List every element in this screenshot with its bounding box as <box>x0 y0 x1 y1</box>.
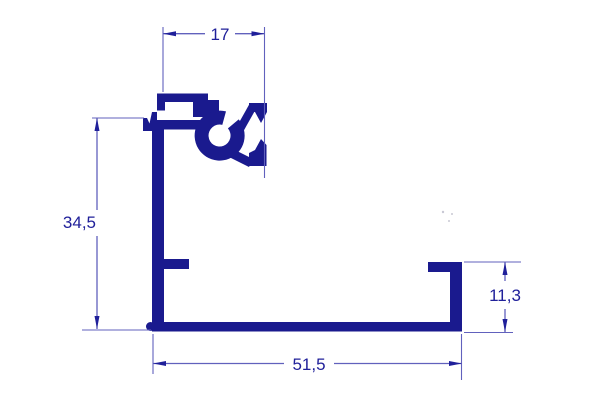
dim-left-label: 34,5 <box>63 213 96 232</box>
profile-hook-stub <box>157 94 165 111</box>
dimension-bottom-width: 51,5 <box>153 334 462 380</box>
dim-top-label: 17 <box>211 25 230 44</box>
profile-cross-section-drawing: 17 34,5 51,5 11,3 <box>0 0 600 400</box>
profile-bottom-flange <box>152 322 462 332</box>
stray-marks <box>442 211 453 222</box>
arrow-right-icon <box>252 31 265 36</box>
profile-clip-lower-jaw <box>249 139 267 166</box>
arrow-up-icon <box>95 118 100 131</box>
arrow-left-icon <box>153 361 166 366</box>
profile-body <box>143 94 462 332</box>
profile-right-lip <box>428 262 462 272</box>
profile-mid-tab <box>164 259 189 269</box>
profile-right-wall <box>450 262 462 331</box>
dim-right-label: 11,3 <box>489 286 521 305</box>
arrow-left-icon <box>163 31 176 36</box>
arrow-up-icon <box>503 262 508 275</box>
arrow-down-icon <box>503 319 508 332</box>
dim-bottom-label: 51,5 <box>292 355 325 374</box>
dimension-right-height: 11,3 <box>464 262 521 333</box>
technical-drawing: 17 34,5 51,5 11,3 <box>0 0 600 400</box>
profile-left-wall <box>152 120 164 331</box>
arrow-down-icon <box>95 316 100 329</box>
dimension-left-height: 34,5 <box>63 118 151 330</box>
arrow-right-icon <box>449 361 462 366</box>
